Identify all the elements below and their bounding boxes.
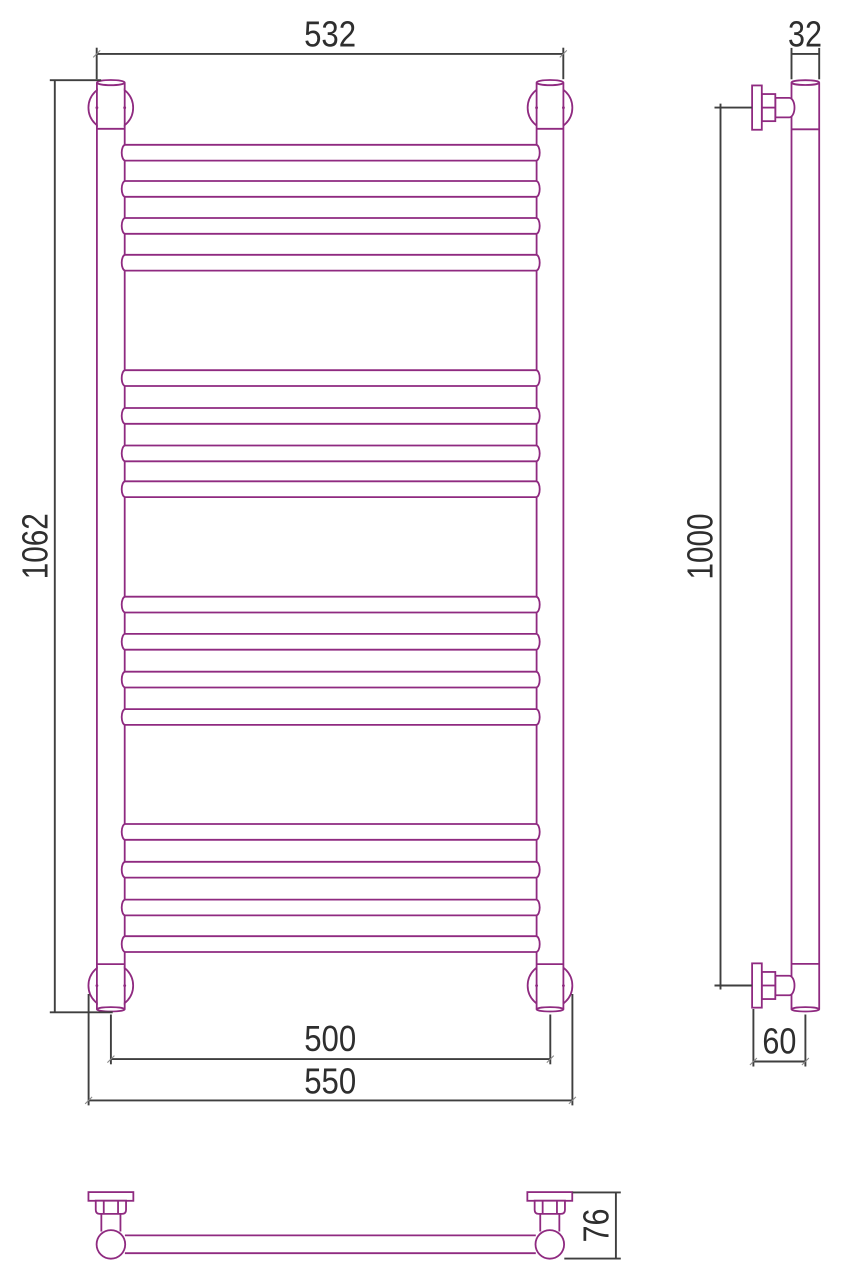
svg-text:532: 532 — [304, 13, 356, 54]
svg-text:60: 60 — [762, 1021, 796, 1062]
svg-text:550: 550 — [304, 1060, 356, 1101]
svg-text:76: 76 — [576, 1209, 617, 1243]
svg-text:1062: 1062 — [15, 513, 56, 579]
svg-text:32: 32 — [788, 14, 822, 55]
svg-text:500: 500 — [304, 1018, 356, 1059]
svg-text:1000: 1000 — [679, 514, 720, 580]
